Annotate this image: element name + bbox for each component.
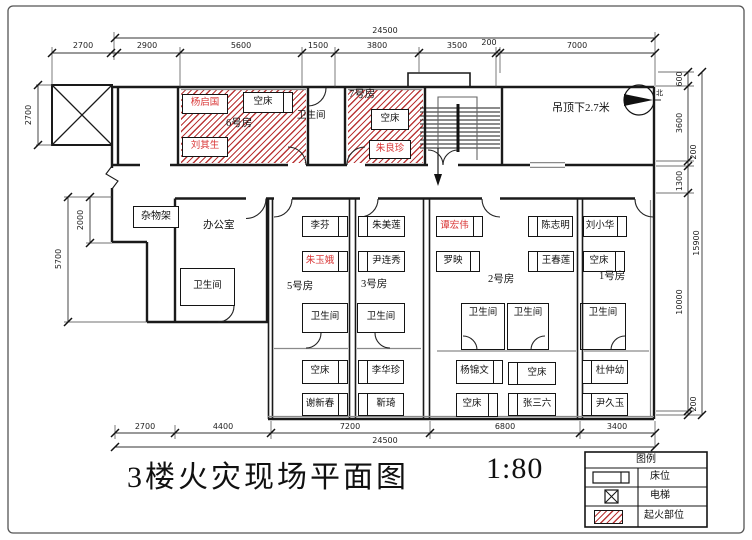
- dim-label: 2700: [135, 423, 155, 431]
- dim-label: 1300: [676, 171, 684, 191]
- ceiling-height-note: 吊顶下2.7米: [552, 103, 610, 114]
- room-label-3: 3号房: [361, 280, 387, 291]
- bed-box: 空床: [508, 362, 556, 385]
- dim-label: 10000: [676, 289, 684, 314]
- bathroom-room2-left: 卫生间: [461, 303, 505, 350]
- bed-box: 尹连秀: [358, 251, 405, 272]
- bed-box: 刘小华: [583, 216, 627, 237]
- legend-item-elevator: 电梯: [650, 491, 670, 501]
- room-label-1: 1号房: [599, 272, 625, 283]
- bed-box: 谭宏伟: [436, 216, 483, 237]
- dim-label: 24500: [372, 437, 397, 445]
- bed-box: 空床: [371, 109, 409, 130]
- room-label-5: 5号房: [287, 282, 313, 293]
- legend-item-bed: 床位: [650, 472, 670, 482]
- dim-label: 2900: [137, 42, 157, 50]
- dim-label: 3400: [607, 423, 627, 431]
- dim-label: 200: [690, 144, 698, 159]
- bed-box: 朱玉娥: [302, 251, 348, 272]
- legend-item-fire-origin: 起火部位: [644, 511, 684, 521]
- bathroom-room2-right: 卫生间: [507, 303, 549, 350]
- dim-label: 2700: [25, 105, 33, 125]
- room-label-office: 办公室: [203, 221, 235, 232]
- dim-label: 7200: [340, 423, 360, 431]
- bed-box: 空床: [243, 92, 293, 113]
- dim-label: 4400: [213, 423, 233, 431]
- bed-box: 空床: [456, 393, 498, 417]
- bed-box: 尹久玉: [582, 393, 628, 416]
- dim-label: 1500: [308, 42, 328, 50]
- bed-box: 李华珍: [358, 360, 404, 384]
- bed-box: 张三六: [508, 393, 556, 416]
- fire-origin-legend-symbol: [594, 510, 623, 524]
- bathroom-room5: 卫生间: [302, 303, 348, 333]
- storage-rack: 杂物架: [133, 206, 179, 228]
- room-label-7: 7号房: [349, 90, 375, 101]
- bed-box: 杨启国: [182, 94, 228, 114]
- bed-box: 王春莲: [528, 251, 574, 272]
- bed-box: 朱良珍: [369, 140, 411, 159]
- bed-box: 李芬: [302, 216, 348, 237]
- bed-box: 空床: [583, 251, 625, 272]
- drawing-title: 3楼火灾现场平面图: [127, 452, 409, 496]
- bed-box: 陈志明: [528, 216, 573, 237]
- bed-box: 杜仲幼: [582, 360, 628, 384]
- bathroom-room1: 卫生间: [580, 303, 626, 350]
- bed-box: 谢新春: [302, 393, 348, 416]
- dim-label: 600: [676, 71, 684, 86]
- bed-box: 罗映: [436, 251, 480, 272]
- drawing-scale: 1:80: [486, 452, 543, 486]
- bed-box: 朱美莲: [358, 216, 405, 237]
- legend-header: 图例: [585, 455, 707, 465]
- floor-plan-page: 杨启国 空床 刘其生 空床 朱良珍 李芬 朱玉娥 空床 谢新春 朱美莲 尹连秀 …: [0, 0, 752, 540]
- dim-label: 7000: [567, 42, 587, 50]
- dim-label: 3600: [676, 113, 684, 133]
- dim-label: 15900: [693, 230, 701, 255]
- dim-label: 200: [690, 396, 698, 411]
- bed-box: 杨锦文: [456, 360, 503, 384]
- bed-box: 刘其生: [182, 137, 228, 157]
- north-compass-label: 北: [656, 90, 663, 97]
- bathroom-room3: 卫生间: [357, 303, 405, 333]
- dim-label: 2000: [77, 210, 85, 230]
- dim-label: 3800: [367, 42, 387, 50]
- bed-box: 靳琦: [358, 393, 404, 416]
- dim-label: 24500: [372, 27, 397, 35]
- bed-box: 空床: [302, 360, 348, 384]
- dim-label: 5700: [55, 249, 63, 269]
- room-label-6: 6号房: [226, 119, 252, 130]
- dim-label: 5600: [231, 42, 251, 50]
- room-label-2: 2号房: [488, 275, 514, 286]
- bathroom-office: 卫生间: [180, 268, 235, 306]
- dim-label: 200: [481, 39, 496, 47]
- dim-label: 2700: [73, 42, 93, 50]
- dim-label: 6800: [495, 423, 515, 431]
- dim-label: 3500: [447, 42, 467, 50]
- room-label-bath-top: 卫生间: [297, 112, 326, 122]
